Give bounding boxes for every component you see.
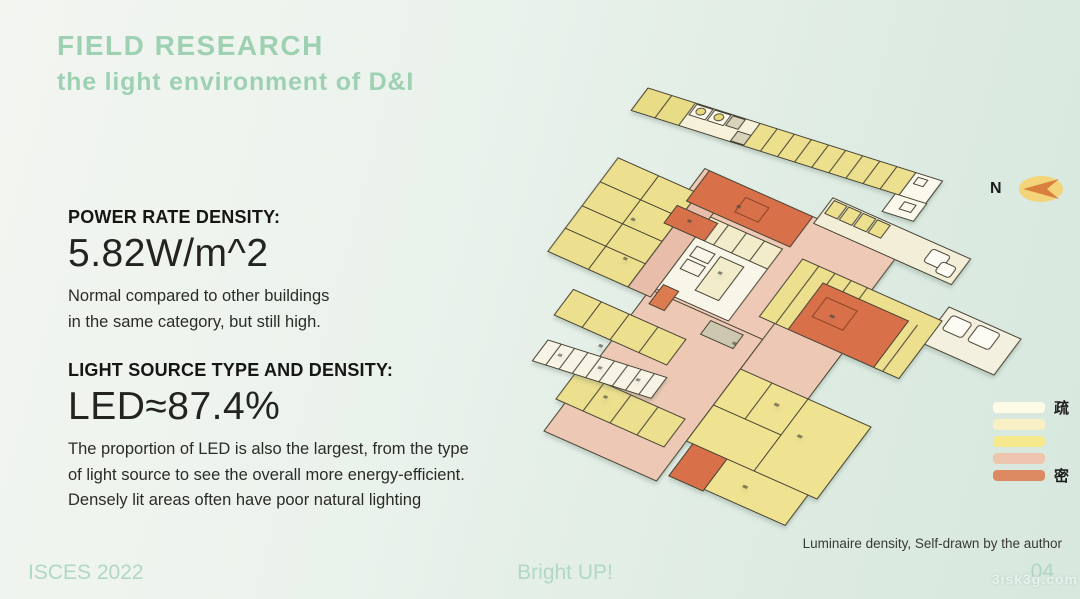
- page-subtitle: the light environment of D&I: [57, 68, 414, 97]
- footer-slogan: Bright UP!: [517, 561, 613, 585]
- section-body: Normal compared to other buildings in th…: [68, 284, 329, 335]
- density-legend: [993, 402, 1045, 481]
- legend-label-dense: 密: [1054, 469, 1069, 484]
- legend-label-sparse: 疏: [1054, 401, 1069, 416]
- section-heading: POWER RATE DENSITY:: [68, 207, 329, 228]
- figure-caption: Luminaire density, Self-drawn by the aut…: [803, 536, 1062, 551]
- watermark: 3isk3g.com: [992, 571, 1078, 587]
- legend-swatch: [993, 419, 1045, 430]
- legend-swatch: [993, 453, 1045, 464]
- compass: N: [985, 170, 1065, 210]
- power-density-value: 5.82W/m^2: [68, 232, 329, 276]
- title-block: FIELD RESEARCH the light environment of …: [57, 30, 414, 97]
- section-heading: LIGHT SOURCE TYPE AND DENSITY:: [68, 360, 469, 381]
- section-body: The proportion of LED is also the larges…: [68, 437, 469, 514]
- led-share-value: LED≈87.4%: [68, 385, 469, 429]
- legend-swatch-sparse: [993, 402, 1045, 413]
- legend-swatch: [993, 436, 1045, 447]
- compass-arrow-icon: [1007, 172, 1065, 206]
- slide: FIELD RESEARCH the light environment of …: [0, 0, 1080, 599]
- footer-conference: ISCES 2022: [28, 561, 144, 585]
- legend-swatch-dense: [993, 470, 1045, 481]
- section-light-source: LIGHT SOURCE TYPE AND DENSITY: LED≈87.4%…: [68, 360, 469, 514]
- page-title: FIELD RESEARCH: [57, 30, 414, 62]
- section-power-rate-density: POWER RATE DENSITY: 5.82W/m^2 Normal com…: [68, 207, 329, 335]
- floor-plan-body: [446, 116, 1054, 567]
- compass-north-label: N: [990, 180, 1002, 198]
